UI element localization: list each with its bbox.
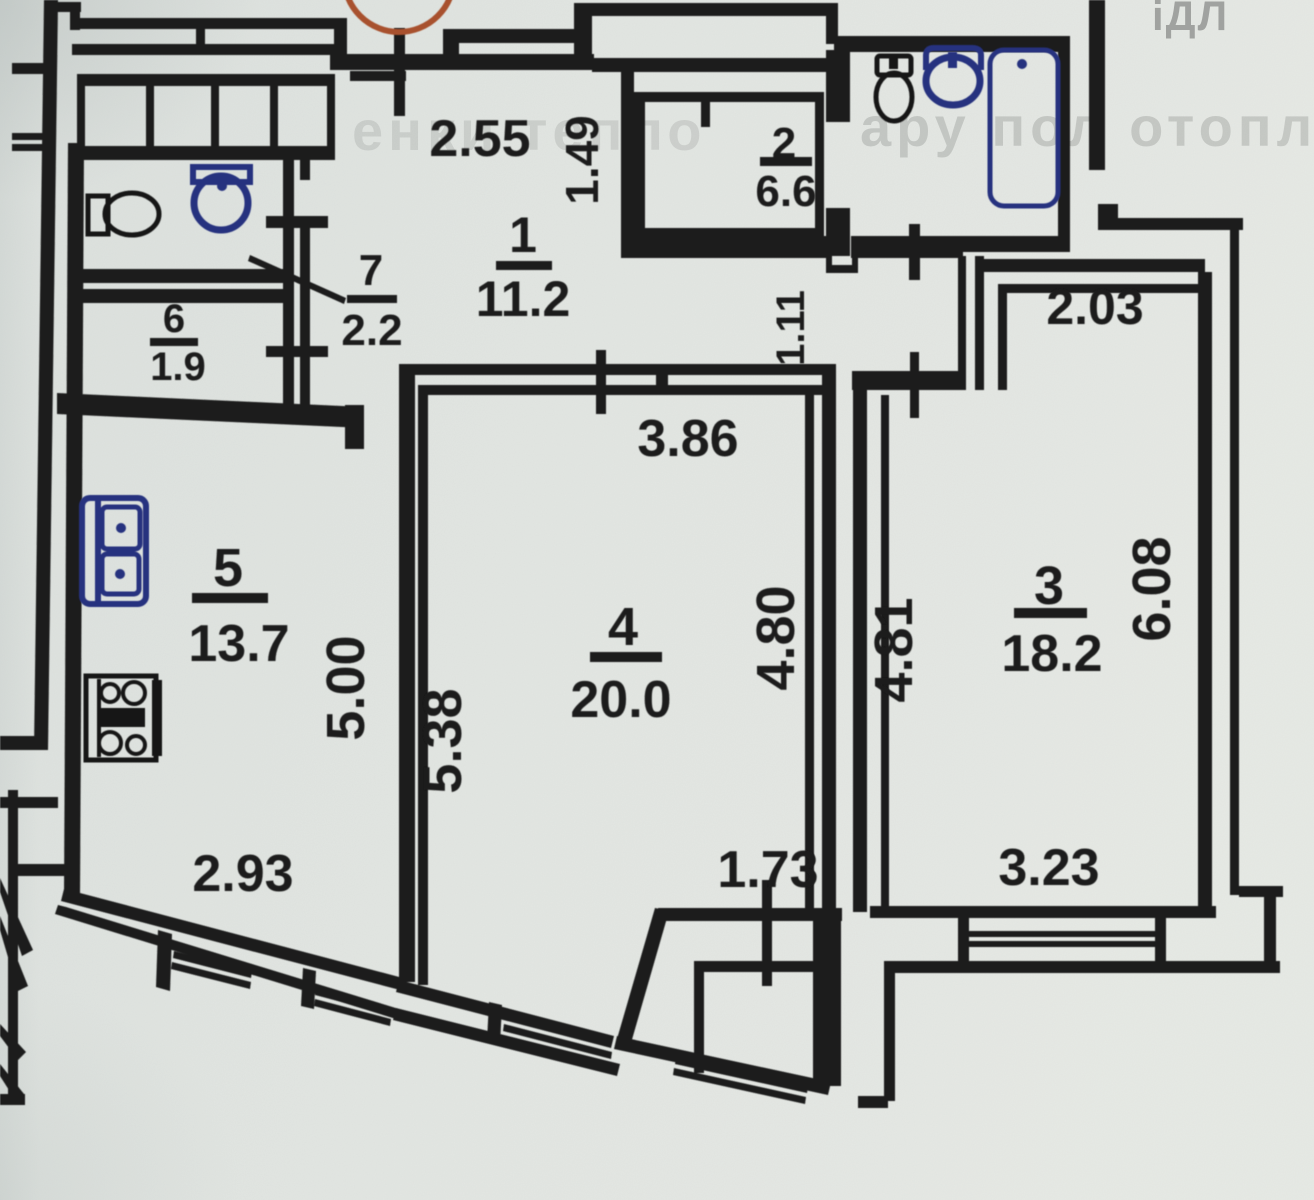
svg-text:іДЛ: іДЛ: [1152, 0, 1229, 39]
svg-text:18.2: 18.2: [1001, 625, 1102, 683]
svg-text:3: 3: [1034, 556, 1064, 616]
svg-text:5: 5: [213, 538, 243, 598]
svg-text:2.55: 2.55: [429, 110, 530, 168]
svg-text:6.6: 6.6: [755, 167, 816, 216]
svg-text:1.73: 1.73: [717, 841, 818, 899]
svg-text:3.86: 3.86: [637, 410, 738, 468]
svg-text:4.80: 4.80: [746, 585, 806, 690]
svg-text:1.49: 1.49: [556, 115, 608, 205]
svg-text:6: 6: [163, 297, 185, 341]
svg-text:1: 1: [509, 207, 537, 263]
svg-text:4.81: 4.81: [864, 597, 924, 702]
svg-text:4: 4: [608, 597, 638, 657]
svg-text:20.0: 20.0: [570, 671, 671, 729]
svg-text:13.7: 13.7: [188, 615, 289, 673]
svg-text:ару пол отопл: ару пол отопл: [860, 95, 1314, 158]
svg-text:3.23: 3.23: [998, 839, 1099, 897]
svg-text:6.08: 6.08: [1122, 536, 1182, 641]
svg-text:5.00: 5.00: [316, 635, 376, 740]
svg-text:11.2: 11.2: [476, 271, 571, 327]
svg-text:1.9: 1.9: [150, 345, 206, 389]
svg-text:5.38: 5.38: [413, 688, 473, 793]
svg-text:2.03: 2.03: [1046, 279, 1143, 335]
svg-text:7: 7: [359, 246, 383, 295]
svg-text:2.2: 2.2: [341, 306, 402, 355]
svg-text:1.11: 1.11: [769, 290, 813, 366]
svg-text:2.93: 2.93: [192, 845, 293, 903]
